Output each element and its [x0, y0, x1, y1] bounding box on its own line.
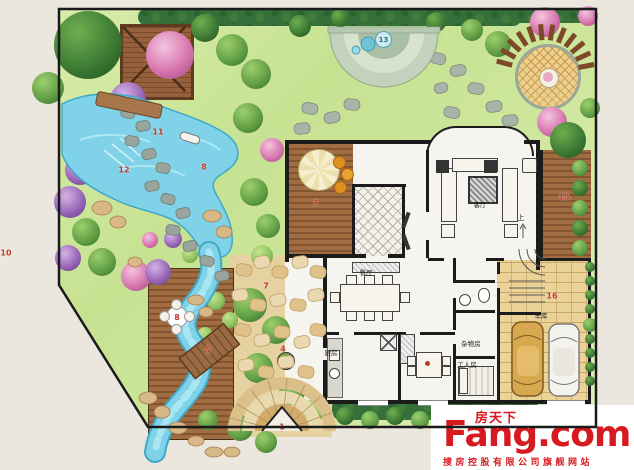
- watermark-tagline: 搜房控股有限公司旗舰网站: [443, 455, 593, 468]
- landscape-plan-screenshot: 8 1 3 4 5 7 8 10 11 12 13 15 16 客厅 餐厅 厨房…: [0, 0, 634, 470]
- plan-boundary: [58, 8, 597, 429]
- marker-10: 10: [0, 249, 11, 258]
- garden-floor-plan: 8 1 3 4 5 7 8 10 11 12 13 15 16 客厅 餐厅 厨房…: [58, 8, 597, 429]
- tree: [255, 431, 277, 453]
